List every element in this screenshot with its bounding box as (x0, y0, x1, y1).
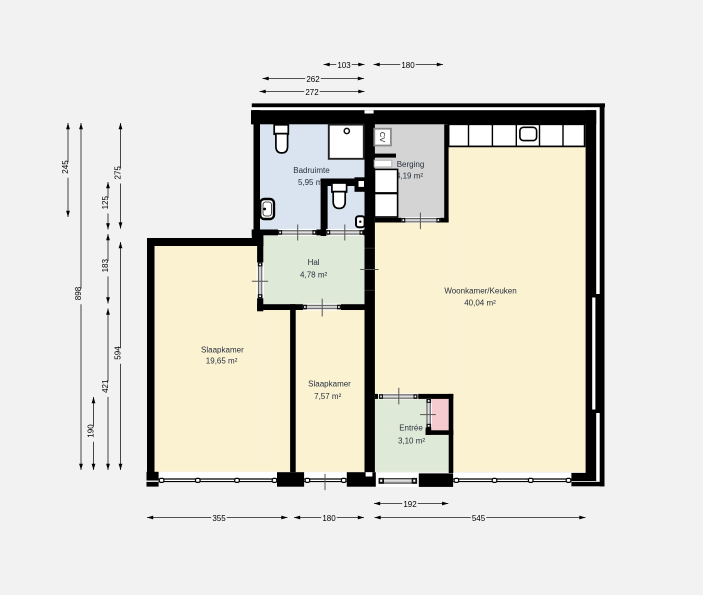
svg-text:19,65 m²: 19,65 m² (206, 357, 238, 366)
svg-text:40,04 m²: 40,04 m² (464, 299, 496, 308)
svg-text:355: 355 (212, 514, 226, 523)
svg-text:183: 183 (101, 258, 110, 272)
svg-text:245: 245 (61, 160, 70, 174)
svg-text:594: 594 (114, 346, 123, 360)
svg-text:Berging: Berging (397, 160, 425, 169)
svg-text:3,10 m²: 3,10 m² (398, 436, 425, 445)
svg-text:125: 125 (101, 195, 110, 209)
svg-text:7,57 m²: 7,57 m² (314, 392, 341, 401)
svg-text:898: 898 (74, 286, 83, 300)
svg-text:Entrée: Entrée (399, 424, 423, 433)
svg-text:180: 180 (401, 61, 415, 70)
svg-text:103: 103 (337, 61, 351, 70)
svg-text:Slaapkamer: Slaapkamer (308, 380, 351, 389)
svg-text:421: 421 (101, 379, 110, 393)
svg-text:Badruimte: Badruimte (293, 166, 330, 175)
svg-text:545: 545 (472, 514, 486, 523)
svg-text:CV: CV (378, 132, 387, 142)
svg-text:Woonkamer/Keuken: Woonkamer/Keuken (444, 287, 516, 296)
svg-text:Hal: Hal (308, 258, 320, 267)
svg-text:275: 275 (114, 166, 123, 180)
svg-text:272: 272 (305, 88, 319, 97)
svg-text:180: 180 (322, 514, 336, 523)
svg-text:192: 192 (403, 500, 417, 509)
svg-text:190: 190 (87, 424, 96, 438)
svg-text:4,78 m²: 4,78 m² (300, 271, 327, 280)
svg-text:Slaapkamer: Slaapkamer (201, 345, 244, 354)
svg-text:262: 262 (306, 75, 320, 84)
svg-text:4,19 m²: 4,19 m² (396, 172, 423, 181)
